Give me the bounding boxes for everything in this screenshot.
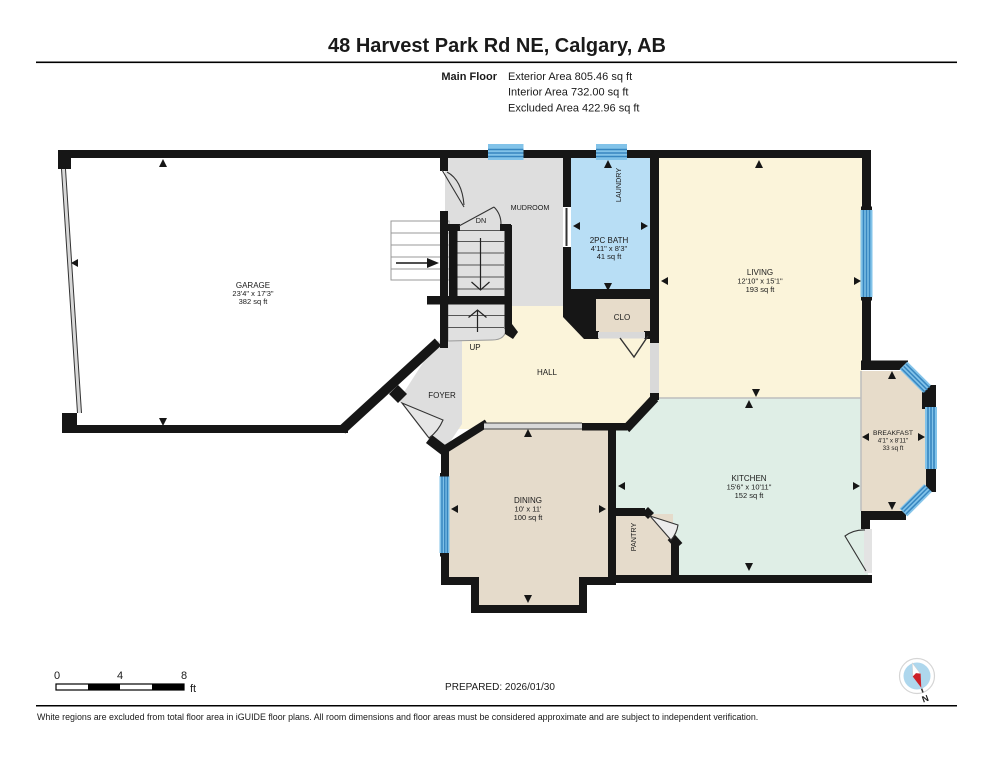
svg-text:Excluded Area 422.96 sq ft: Excluded Area 422.96 sq ft (508, 102, 639, 114)
svg-text:ft: ft (190, 683, 196, 695)
svg-text:Exterior Area 805.46 sq ft: Exterior Area 805.46 sq ft (508, 71, 632, 83)
svg-text:Main Floor: Main Floor (441, 71, 497, 83)
svg-text:0: 0 (54, 670, 60, 682)
svg-text:152 sq ft: 152 sq ft (735, 491, 765, 500)
svg-text:382 sq ft: 382 sq ft (239, 297, 269, 306)
svg-text:FOYER: FOYER (428, 391, 456, 400)
svg-text:MUDROOM: MUDROOM (511, 203, 550, 212)
svg-text:100 sq ft: 100 sq ft (514, 513, 544, 522)
svg-text:48 Harvest Park Rd NE, Calgary: 48 Harvest Park Rd NE, Calgary, AB (328, 35, 666, 57)
svg-text:UP: UP (469, 343, 480, 352)
svg-text:White regions are excluded fro: White regions are excluded from total fl… (37, 712, 758, 722)
svg-text:CLO: CLO (614, 313, 630, 322)
svg-text:193 sq ft: 193 sq ft (746, 285, 776, 294)
svg-text:8: 8 (181, 670, 187, 682)
svg-text:33 sq ft: 33 sq ft (883, 445, 904, 452)
svg-text:DN: DN (476, 216, 486, 225)
svg-text:LAUNDRY: LAUNDRY (614, 168, 623, 202)
svg-text:Interior Area 732.00 sq ft: Interior Area 732.00 sq ft (508, 87, 628, 99)
svg-text:4: 4 (117, 670, 123, 682)
svg-text:HALL: HALL (537, 368, 558, 377)
svg-text:BREAKFAST: BREAKFAST (873, 430, 913, 437)
svg-text:41 sq ft: 41 sq ft (597, 252, 623, 261)
svg-text:PREPARED: 2026/01/30: PREPARED: 2026/01/30 (445, 682, 555, 693)
svg-text:PANTRY: PANTRY (629, 523, 638, 552)
svg-text:4'1" x 8'11": 4'1" x 8'11" (878, 438, 909, 445)
